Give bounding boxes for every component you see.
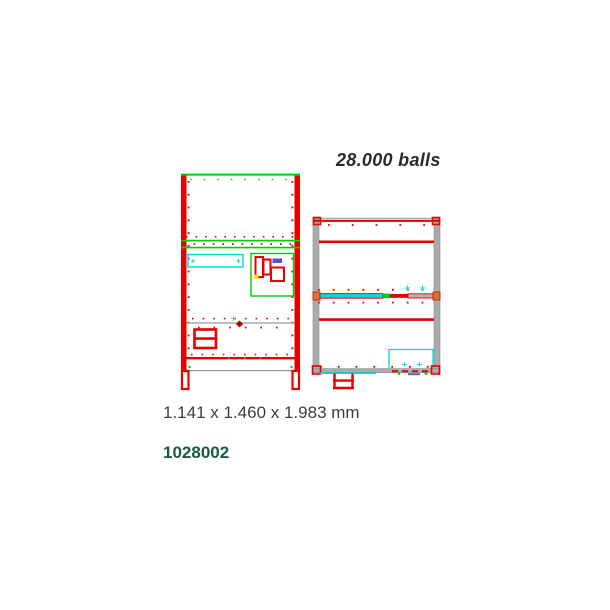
cabinet-side-view bbox=[313, 218, 441, 390]
side-shelf-cap-right bbox=[433, 292, 440, 300]
capacity-label: 28.000 balls bbox=[336, 150, 441, 171]
side-shelf-cross-2 bbox=[420, 286, 425, 291]
front-bottom-green-dot-right bbox=[290, 366, 292, 368]
front-ball-outlet bbox=[195, 330, 217, 349]
front-label-window-cross-right bbox=[237, 259, 241, 263]
front-door-leaf-inner bbox=[264, 260, 271, 275]
front-centre-marker bbox=[236, 320, 243, 327]
product-code-label: 1028002 bbox=[163, 443, 229, 463]
side-shelf-cap-left bbox=[313, 292, 320, 300]
side-shelf-gray-segment bbox=[408, 294, 433, 298]
side-shelf-green-segment bbox=[383, 294, 390, 299]
cad-drawing bbox=[0, 0, 610, 610]
front-label-window bbox=[188, 255, 243, 268]
front-right-post bbox=[295, 174, 301, 371]
front-label-window-cross-left bbox=[191, 259, 195, 263]
side-base-green-dot-2 bbox=[425, 372, 428, 375]
side-hatch-cross-2 bbox=[417, 362, 422, 367]
side-base-assembly bbox=[313, 366, 441, 375]
side-shelf-red-segment bbox=[390, 294, 408, 298]
side-shelf-cross-1 bbox=[405, 286, 410, 291]
front-door-leaf-outer bbox=[256, 257, 264, 277]
cabinet-front-view bbox=[181, 174, 300, 389]
front-bottom-green-dot-left bbox=[188, 366, 190, 368]
side-ball-outlet bbox=[333, 374, 354, 390]
side-shelf-cyan-bar bbox=[320, 294, 383, 299]
front-small-hatch bbox=[271, 268, 284, 282]
side-base-bar bbox=[313, 369, 440, 373]
front-centre-cross bbox=[231, 316, 236, 321]
front-coin-slot bbox=[273, 259, 283, 264]
side-hatch-cross-1 bbox=[402, 362, 407, 367]
front-access-panel bbox=[251, 254, 294, 297]
dimensions-label: 1.141 x 1.460 x 1.983 mm bbox=[163, 403, 360, 423]
front-right-leg bbox=[293, 371, 300, 389]
product-drawing-page: 28.000 balls 1.141 x 1.460 x 1.983 mm 10… bbox=[0, 0, 610, 610]
front-door-hinge-mark bbox=[254, 275, 259, 280]
front-left-leg bbox=[182, 371, 189, 389]
side-hatch-window bbox=[389, 350, 433, 371]
side-shelf-assembly bbox=[313, 286, 440, 303]
front-left-post bbox=[181, 174, 187, 371]
side-base-green-dot-1 bbox=[398, 372, 401, 375]
